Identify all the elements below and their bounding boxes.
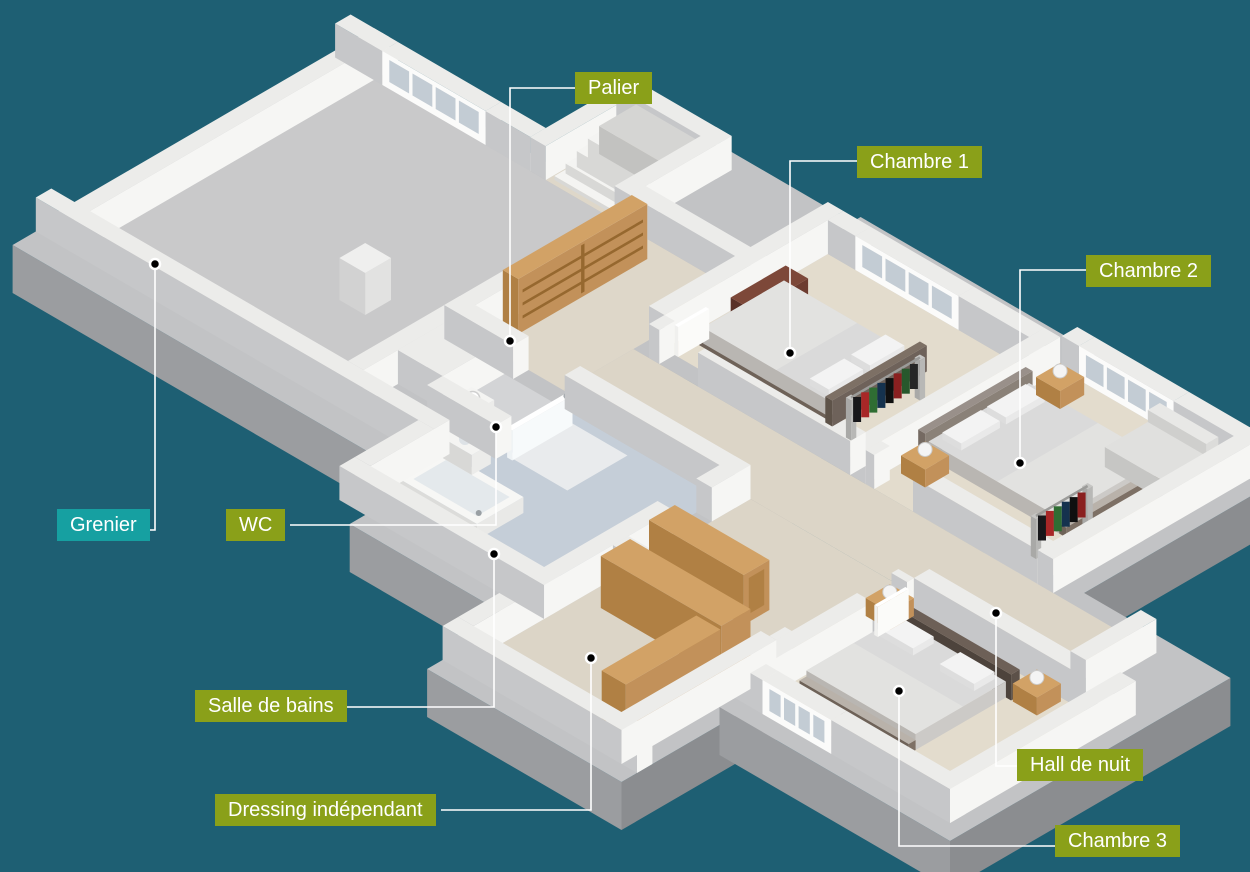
- callout-chambre-1: Chambre 1: [857, 146, 982, 178]
- floor-plan-figure: PalierChambre 1Chambre 2GrenierWCSalle d…: [0, 0, 1250, 872]
- callout-wc: WC: [226, 509, 285, 541]
- callout-hall-de-nuit: Hall de nuit: [1017, 749, 1143, 781]
- callout-chambre-2: Chambre 2: [1086, 255, 1211, 287]
- isometric-floor-plan: [0, 0, 1250, 872]
- callout-grenier: Grenier: [57, 509, 150, 541]
- callout-salle-de-bains: Salle de bains: [195, 690, 347, 722]
- callout-chambre-3: Chambre 3: [1055, 825, 1180, 857]
- callout-dressing: Dressing indépendant: [215, 794, 436, 826]
- callout-palier: Palier: [575, 72, 652, 104]
